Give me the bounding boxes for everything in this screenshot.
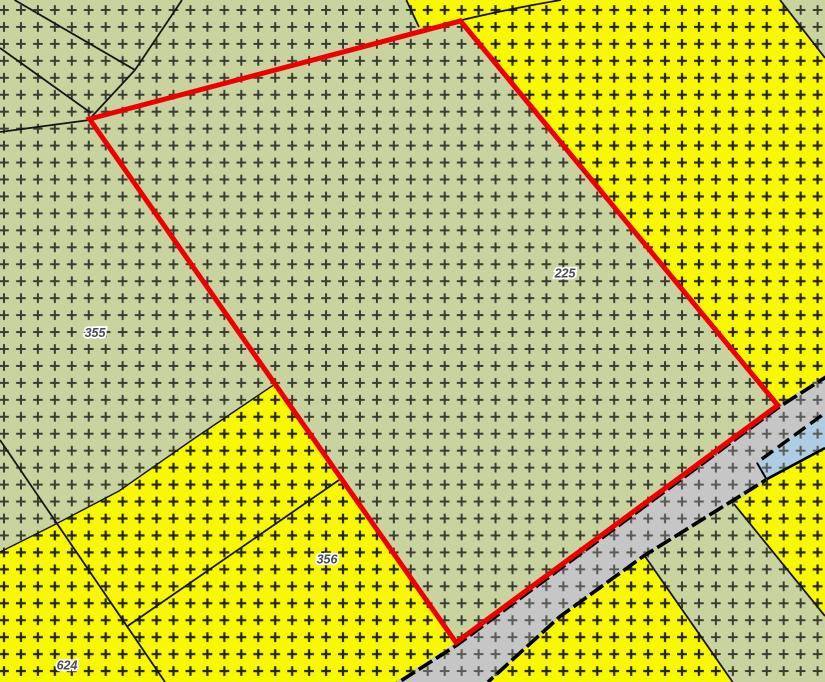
svg-text:355: 355 — [85, 326, 107, 340]
svg-text:225: 225 — [554, 267, 577, 281]
svg-text:624: 624 — [57, 659, 78, 673]
svg-text:356: 356 — [317, 553, 339, 567]
